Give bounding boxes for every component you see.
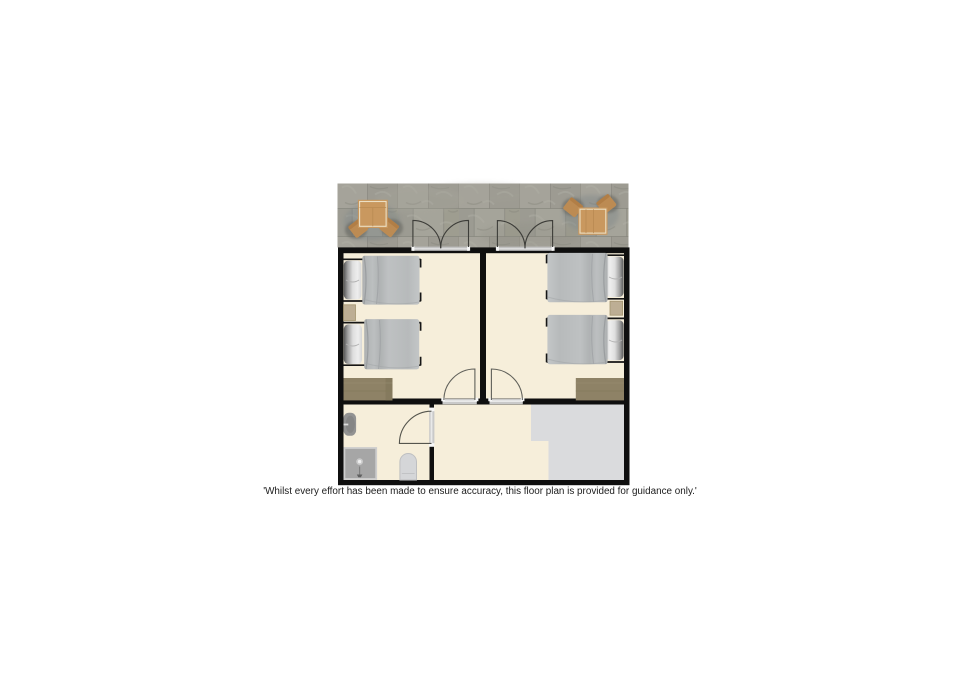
- svg-text:'Whilst every effort has been: 'Whilst every effort has been made to en…: [263, 486, 697, 497]
